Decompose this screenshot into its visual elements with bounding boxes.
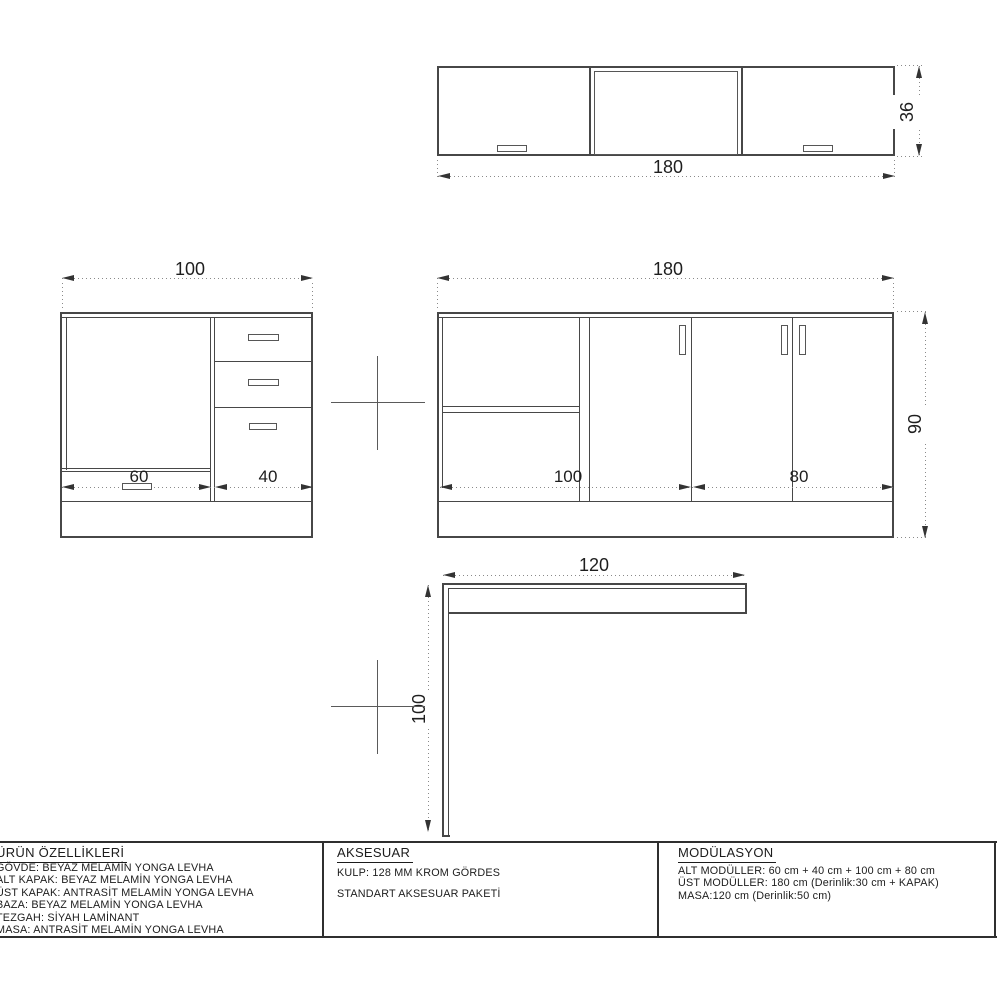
cabinet-outline [437, 312, 894, 538]
drawer-divider-line [215, 361, 313, 362]
spec-rows-product-features: GÖVDE: BEYAZ MELAMİN YONGA LEVHAALT KAPA… [0, 862, 254, 936]
leg-outer-line [442, 583, 444, 837]
spec-row: GÖVDE: BEYAZ MELAMİN YONGA LEVHA [0, 862, 254, 874]
drawer-divider-line [215, 407, 313, 408]
dim-arrow [443, 572, 455, 578]
spec-row: KULP: 128 MM KROM GÖRDES [337, 863, 501, 884]
dim-arrow [438, 173, 450, 179]
tabletop-inner-line [448, 588, 747, 589]
table-top-border [0, 841, 997, 843]
plus-horizontal-line [331, 706, 425, 707]
spec-row: STANDART AKSESUAR PAKETİ [337, 884, 501, 905]
door-handle [781, 325, 788, 355]
dim-label-height: 36 [890, 95, 924, 129]
door-handle [122, 483, 152, 490]
cabinet-divider-line [210, 318, 211, 502]
dim-label-width: 100 [156, 260, 224, 278]
dim-arrow [62, 484, 74, 490]
dim-arrow [916, 144, 922, 156]
dim-label-height: 100 [402, 692, 436, 726]
dim-arrow [733, 572, 745, 578]
tabletop-right-edge [745, 583, 747, 614]
dim-label-height: 90 [898, 407, 932, 441]
spec-row: ALT MODÜLLER: 60 cm + 40 cm + 100 cm + 8… [678, 865, 939, 877]
leg-bottom-cap [442, 835, 450, 837]
plinth-line [60, 501, 313, 502]
dimension-line [443, 575, 745, 576]
dim-label-right-section: 80 [775, 468, 823, 486]
dim-label-width: 120 [558, 556, 630, 574]
dim-arrow [679, 484, 691, 490]
open-section-inner-outline [594, 71, 738, 155]
tabletop-bottom-line [448, 612, 747, 614]
drawer-handle [248, 334, 279, 341]
dim-arrow [425, 820, 431, 832]
tabletop-top-line [442, 583, 747, 585]
spec-row: MASA:120 cm (Derinlik:50 cm) [678, 890, 939, 902]
plinth-line [437, 501, 894, 502]
spec-rows-accessories: KULP: 128 MM KROM GÖRDESSTANDART AKSESUA… [337, 863, 501, 905]
extension-line [62, 283, 63, 309]
dimension-line [440, 487, 894, 488]
dim-arrow [62, 275, 74, 281]
plus-vertical-line [377, 660, 378, 754]
extension-line [437, 283, 438, 309]
dim-arrow [916, 66, 922, 78]
technical-drawing-sheet: 180 36 60 40 1 [0, 0, 1000, 1000]
door-handle [799, 325, 806, 355]
spec-row: ÜST MODÜLLER: 180 cm (Derinlik:30 cm + K… [678, 877, 939, 889]
cabinet-divider-line [214, 318, 215, 502]
cabinet-divider-line [741, 66, 743, 156]
spec-row: TEZGAH: SİYAH LAMİNANT [0, 912, 254, 924]
door-edge-line [66, 318, 67, 470]
dim-label-drawers: 40 [244, 468, 292, 486]
spec-rows-modulation: ALT MODÜLLER: 60 cm + 40 cm + 100 cm + 8… [678, 865, 939, 902]
countertop-line [437, 317, 894, 318]
door-handle [679, 325, 686, 355]
spec-row: ALT KAPAK: BEYAZ MELAMİN YONGA LEVHA [0, 874, 254, 886]
extension-line [312, 283, 313, 309]
dim-arrow [883, 173, 895, 179]
dim-arrow [922, 526, 928, 538]
leg-inner-line [448, 589, 449, 837]
dim-arrow [199, 484, 211, 490]
table-right-border [994, 841, 996, 938]
dim-arrow [882, 275, 894, 281]
cabinet-divider-line [589, 66, 591, 156]
dim-arrow [437, 275, 449, 281]
dim-arrow [425, 585, 431, 597]
countertop-line [60, 317, 313, 318]
dim-arrow [693, 484, 705, 490]
dim-arrow [440, 484, 452, 490]
dim-label-width: 180 [632, 260, 704, 278]
door-handle [803, 145, 833, 152]
plus-vertical-line [377, 356, 378, 450]
extension-line [897, 156, 924, 157]
shelf-line [443, 412, 580, 413]
plus-horizontal-line [331, 402, 425, 403]
dim-arrow [215, 484, 227, 490]
drawer-handle [249, 423, 277, 430]
dim-arrow [922, 312, 928, 324]
spec-column-title-accessories: AKSESUAR [337, 845, 413, 863]
spec-column-title-product-features: ÜRÜN ÖZELLİKLERİ [0, 845, 127, 863]
door-handle [497, 145, 527, 152]
table-column-separator [322, 841, 324, 938]
drawer-handle [248, 379, 279, 386]
shelf-line [443, 406, 580, 407]
spec-row: ÜST KAPAK: ANTRASİT MELAMİN YONGA LEVHA [0, 887, 254, 899]
table-column-separator [657, 841, 659, 938]
dim-arrow [882, 484, 894, 490]
dim-arrow [301, 484, 313, 490]
spec-row: BAZA: BEYAZ MELAMİN YONGA LEVHA [0, 899, 254, 911]
spec-column-title-modulation: MODÜLASYON [678, 845, 776, 863]
dim-label-left-section: 100 [534, 468, 602, 486]
dimension-line [62, 487, 313, 488]
door-divider-line [691, 318, 692, 502]
dim-label-width: 180 [632, 158, 704, 176]
extension-line [893, 283, 894, 309]
side-panel-line [442, 318, 443, 488]
dim-arrow [301, 275, 313, 281]
spec-row: MASA: ANTRASİT MELAMİN YONGA LEVHA [0, 924, 254, 936]
